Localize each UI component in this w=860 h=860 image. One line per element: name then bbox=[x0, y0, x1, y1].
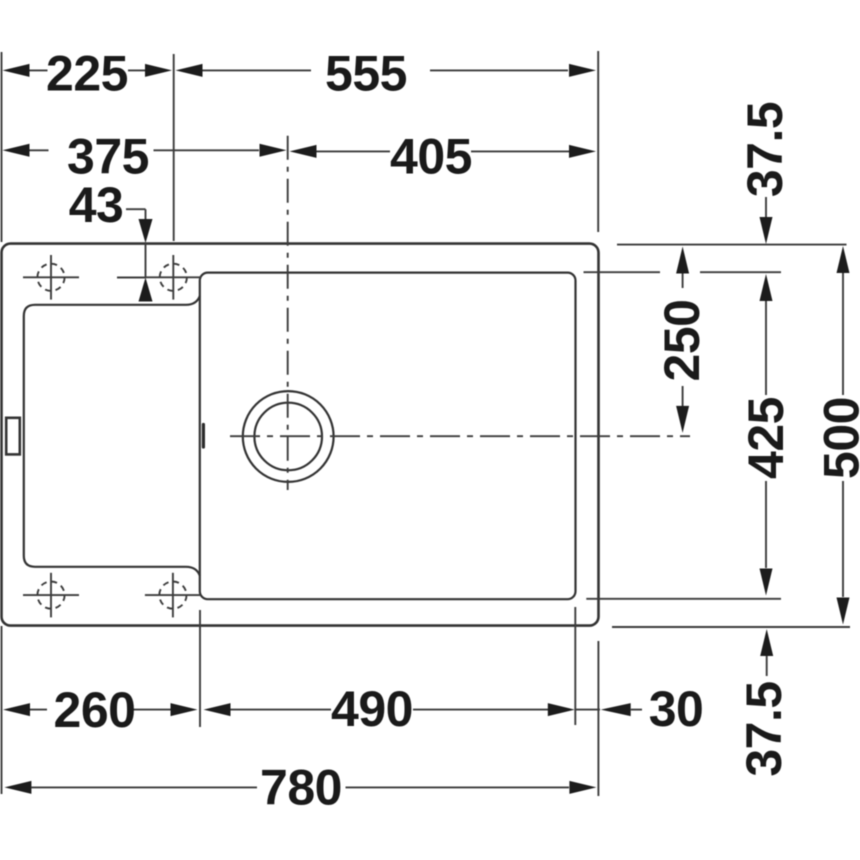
svg-text:555: 555 bbox=[325, 46, 407, 102]
svg-text:250: 250 bbox=[654, 300, 710, 382]
svg-text:780: 780 bbox=[260, 760, 342, 816]
svg-text:37.5: 37.5 bbox=[736, 681, 792, 776]
svg-text:260: 260 bbox=[54, 682, 136, 738]
svg-text:43: 43 bbox=[69, 177, 124, 233]
svg-text:225: 225 bbox=[46, 46, 128, 102]
svg-text:37.5: 37.5 bbox=[737, 102, 793, 197]
svg-text:425: 425 bbox=[738, 397, 794, 479]
svg-text:490: 490 bbox=[331, 681, 413, 737]
svg-text:30: 30 bbox=[649, 681, 704, 737]
svg-text:405: 405 bbox=[390, 129, 472, 185]
svg-text:500: 500 bbox=[814, 397, 860, 479]
